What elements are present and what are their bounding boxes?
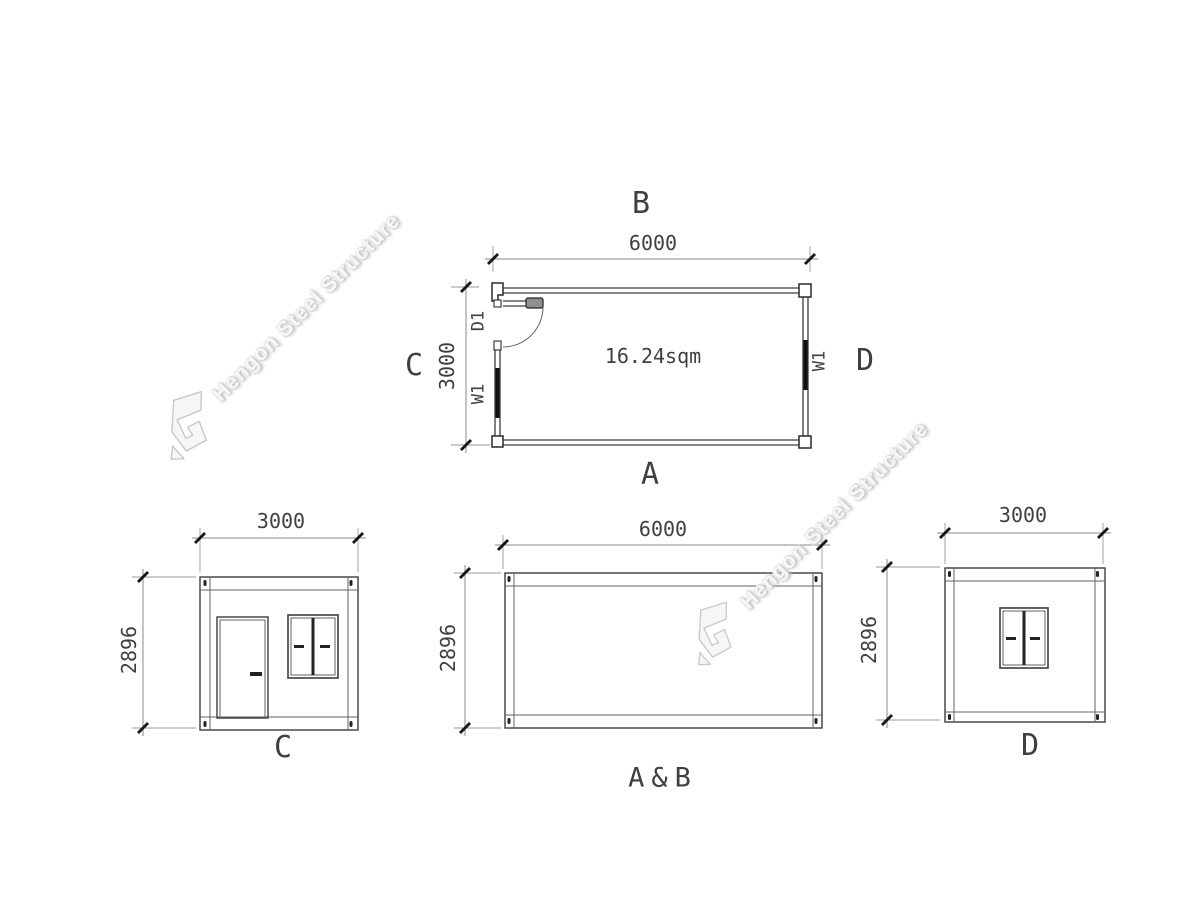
elev-ab-dim-width-label: 6000 [639,519,687,539]
corner-bolt [815,576,818,582]
plan-label-a: A [641,460,659,490]
plan-door-tag: D1 [471,311,488,331]
elev-d-title: D [1021,731,1039,761]
plan-dim-depth-label: 3000 [437,342,457,390]
elev-d-dim-left [876,559,940,728]
elev-c-dim-width-label: 3000 [257,511,305,531]
plan-area-label: 16.24sqm [605,346,701,366]
corner-bolt [948,571,951,577]
plan-dim-width-label: 6000 [629,233,677,253]
elev-c-window [288,615,338,678]
door-handle [250,672,262,676]
elev-ab-title: A&B [628,765,698,792]
plan-window-tag-right: W1 [812,351,829,371]
elev-d-window [1000,608,1048,668]
window-handle [1030,637,1040,640]
plan-label-d: D [856,346,874,376]
window-handle [294,645,304,648]
corner-bolt [204,580,207,586]
elevation-ab-view [454,535,830,736]
elev-d-dim-height-label: 2896 [859,616,879,664]
corner-bolt [350,580,353,586]
plan-door-closer [526,298,543,308]
elev-c-dim-left [132,569,196,736]
plan-window-tag-left: W1 [471,384,488,404]
corner-bolt [204,721,207,727]
corner-bolt [815,718,818,724]
elev-d-dim-top [937,523,1111,564]
elev-c-dim-top [192,528,366,572]
window-handle [1006,637,1016,640]
elev-ab-dim-height-label: 2896 [438,624,458,672]
window-handle [320,645,330,648]
corner-bolt [1096,571,1099,577]
corner-bolt [350,721,353,727]
elev-ab-dim-left [454,565,501,736]
cad-linework [0,0,1200,900]
elev-c-frame [200,577,358,730]
corner-bolt [948,714,951,720]
corner-bolt [508,718,511,724]
corner-bolt [1096,714,1099,720]
elevation-c-view [132,528,366,736]
elev-c-door [217,617,268,718]
elev-d-dim-width-label: 3000 [999,505,1047,525]
plan-door-swing-arc [503,307,543,347]
plan-label-c: C [405,351,423,381]
elevation-d-view [876,523,1111,728]
elev-c-dim-height-label: 2896 [119,626,139,674]
plan-label-b: B [632,189,650,219]
corner-bolt [508,576,511,582]
plan-door [503,298,543,347]
elev-ab-frame [505,573,822,728]
elev-c-title: C [274,733,292,763]
drawing-canvas: B 6000 3000 C D1 W1 16.24sqm W1 D A 3000… [0,0,1200,900]
